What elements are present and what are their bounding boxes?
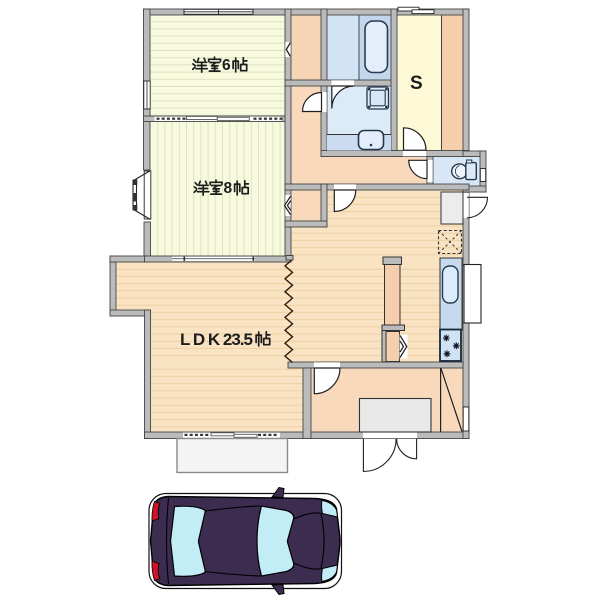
svg-text:8: 8 bbox=[224, 180, 233, 197]
svg-text:6: 6 bbox=[222, 57, 231, 74]
svg-text:S: S bbox=[410, 73, 423, 94]
svg-text:L D K 23.5: L D K 23.5 bbox=[180, 330, 253, 349]
